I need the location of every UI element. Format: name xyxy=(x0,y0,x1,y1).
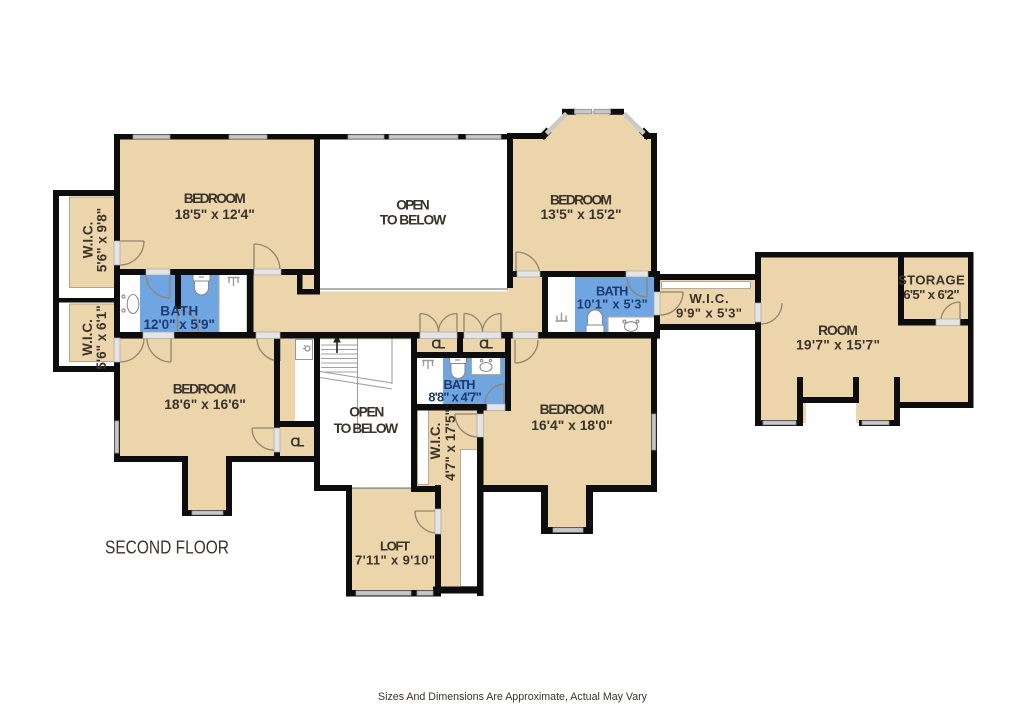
svg-text:BEDROOM: BEDROOM xyxy=(540,402,605,417)
svg-text:W.I.C.: W.I.C. xyxy=(428,423,443,460)
svg-text:TO BELOW: TO BELOW xyxy=(380,213,447,228)
svg-text:8'8" x 4'7": 8'8" x 4'7" xyxy=(428,390,481,405)
svg-text:BEDROOM: BEDROOM xyxy=(184,191,246,206)
svg-text:19'7" x 15'7": 19'7" x 15'7" xyxy=(796,338,880,353)
svg-text:9'9" x 5'3": 9'9" x 5'3" xyxy=(676,306,742,321)
svg-text:LOFT: LOFT xyxy=(380,539,410,554)
svg-text:OPEN: OPEN xyxy=(396,198,430,213)
svg-text:Sizes And Dimensions Are Appro: Sizes And Dimensions Are Approximate, Ac… xyxy=(378,691,647,703)
svg-text:W.I.C.: W.I.C. xyxy=(689,291,728,306)
svg-text:18'5" x 12'4": 18'5" x 12'4" xyxy=(175,207,255,222)
svg-text:16'4" x 18'0": 16'4" x 18'0" xyxy=(531,418,612,433)
svg-text:6'5" x 6'2": 6'5" x 6'2" xyxy=(903,287,959,302)
svg-text:5'6" x 9'8": 5'6" x 9'8" xyxy=(94,208,109,272)
svg-text:4'7" x 17'5": 4'7" x 17'5" xyxy=(443,409,458,481)
svg-text:13'5" x 15'2": 13'5" x 15'2" xyxy=(541,207,622,222)
svg-text:W.I.C.: W.I.C. xyxy=(80,319,95,356)
svg-text:SECOND FLOOR: SECOND FLOOR xyxy=(105,537,229,558)
svg-text:ROOM: ROOM xyxy=(818,323,858,338)
svg-text:OPEN: OPEN xyxy=(349,405,384,420)
svg-text:CL: CL xyxy=(479,338,493,352)
svg-text:5'6" x 6'1": 5'6" x 6'1" xyxy=(94,305,109,369)
svg-text:BEDROOM: BEDROOM xyxy=(550,193,612,208)
svg-text:TO BELOW: TO BELOW xyxy=(334,421,399,436)
svg-text:18'6" x 16'6": 18'6" x 16'6" xyxy=(164,397,246,412)
svg-text:BEDROOM: BEDROOM xyxy=(173,382,237,397)
svg-text:CL: CL xyxy=(431,338,445,352)
svg-text:12'0" x 5'9": 12'0" x 5'9" xyxy=(143,317,215,332)
svg-text:7'11" x 9'10": 7'11" x 9'10" xyxy=(355,553,435,568)
svg-text:CL: CL xyxy=(291,436,305,450)
svg-text:STORAGE: STORAGE xyxy=(898,273,965,288)
svg-text:10'1" x 5'3": 10'1" x 5'3" xyxy=(577,297,648,312)
